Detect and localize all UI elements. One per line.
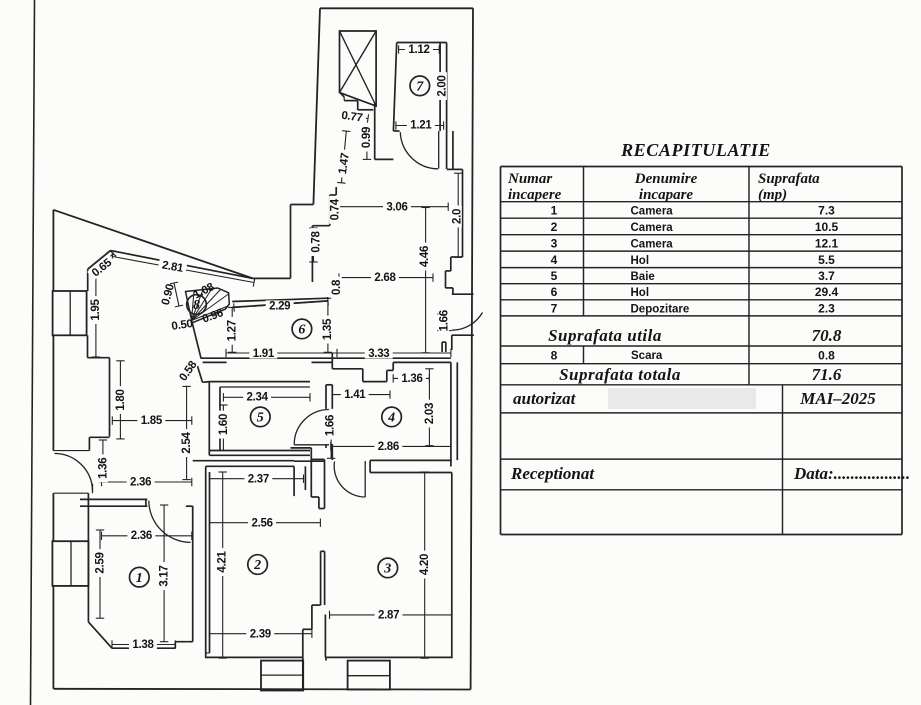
svg-text:2.0: 2.0: [451, 209, 463, 224]
svg-text:2.29: 2.29: [269, 301, 290, 313]
svg-text:2.86: 2.86: [378, 441, 399, 453]
svg-text:3.17: 3.17: [158, 565, 170, 586]
svg-text:7: 7: [416, 79, 424, 94]
svg-text:1.66: 1.66: [439, 310, 451, 331]
svg-text:2.68: 2.68: [374, 272, 396, 284]
svg-text:Hol: Hol: [631, 287, 650, 299]
svg-text:2.36: 2.36: [130, 477, 151, 489]
svg-text:Scara: Scara: [631, 350, 663, 362]
svg-text:1.80: 1.80: [115, 389, 127, 410]
svg-text:1.27: 1.27: [226, 320, 238, 341]
svg-text:RECAPITULATIE: RECAPITULATIE: [620, 140, 771, 160]
svg-text:4.21: 4.21: [217, 551, 229, 573]
svg-text:0.8: 0.8: [818, 349, 835, 363]
svg-text:3.06: 3.06: [386, 202, 407, 214]
svg-text:incapare: incapare: [639, 187, 694, 203]
svg-text:70.8: 70.8: [812, 326, 842, 345]
svg-text:Suprafata: Suprafata: [758, 171, 820, 187]
svg-text:1.36: 1.36: [97, 458, 109, 479]
svg-text:12.1: 12.1: [815, 236, 839, 250]
svg-text:6: 6: [298, 323, 305, 338]
svg-text:2.34: 2.34: [247, 392, 269, 404]
svg-text:1.12: 1.12: [408, 44, 429, 56]
svg-text:1.21: 1.21: [410, 120, 432, 132]
svg-text:71.6: 71.6: [812, 365, 842, 384]
svg-text:Suprafata totala: Suprafata totala: [559, 365, 681, 384]
svg-text:1.41: 1.41: [344, 389, 366, 401]
svg-text:autorizat: autorizat: [513, 389, 577, 408]
svg-text:5.5: 5.5: [818, 253, 835, 267]
svg-text:0.99: 0.99: [361, 127, 373, 148]
svg-text:7.3: 7.3: [818, 203, 835, 217]
svg-text:10.5: 10.5: [815, 220, 839, 234]
svg-text:MAI–2025: MAI–2025: [799, 389, 876, 408]
svg-text:Camera: Camera: [631, 222, 674, 234]
svg-text:4.20: 4.20: [419, 554, 431, 575]
svg-text:1: 1: [136, 571, 143, 586]
svg-text:Depozitare: Depozitare: [631, 303, 690, 315]
svg-text:8: 8: [551, 349, 558, 363]
svg-text:3.7: 3.7: [818, 269, 835, 283]
svg-text:1: 1: [551, 203, 558, 217]
svg-text:1.38: 1.38: [132, 639, 154, 651]
svg-text:5: 5: [551, 269, 558, 283]
svg-text:Hol: Hol: [631, 255, 650, 267]
svg-text:Baie: Baie: [631, 271, 655, 283]
svg-text:2.39: 2.39: [250, 628, 271, 640]
svg-text:6: 6: [551, 285, 558, 299]
svg-text:Data:..................: Data:..................: [793, 464, 910, 483]
svg-text:1.60: 1.60: [218, 414, 230, 435]
svg-text:3.33: 3.33: [368, 348, 389, 360]
svg-text:2.37: 2.37: [248, 473, 269, 485]
svg-text:29.4: 29.4: [815, 285, 839, 299]
svg-text:2.03: 2.03: [424, 403, 436, 424]
svg-text:0.78: 0.78: [310, 231, 322, 253]
svg-text:2.3: 2.3: [818, 301, 835, 315]
svg-text:4.46: 4.46: [419, 246, 431, 267]
svg-text:1.85: 1.85: [141, 415, 163, 427]
svg-text:2.54: 2.54: [181, 432, 193, 454]
svg-text:Numar: Numar: [507, 171, 552, 187]
svg-text:7: 7: [551, 301, 558, 315]
svg-text:4: 4: [551, 253, 558, 267]
svg-text:1.91: 1.91: [253, 348, 275, 360]
svg-text:2.59: 2.59: [95, 552, 107, 573]
svg-text:2.36: 2.36: [131, 530, 152, 542]
svg-text:2.00: 2.00: [436, 75, 448, 96]
svg-text:2.87: 2.87: [378, 610, 399, 622]
svg-text:2: 2: [253, 558, 261, 573]
svg-text:0.8: 0.8: [331, 279, 343, 295]
svg-text:incapere: incapere: [508, 187, 562, 203]
svg-text:Camera: Camera: [631, 238, 674, 250]
svg-text:2: 2: [551, 220, 558, 234]
svg-text:3: 3: [551, 236, 558, 250]
svg-text:3: 3: [383, 562, 391, 577]
svg-text:1.35: 1.35: [322, 318, 334, 340]
svg-text:Receptionat: Receptionat: [510, 464, 595, 483]
svg-text:5: 5: [257, 411, 264, 426]
svg-text:Suprafata utila: Suprafata utila: [548, 326, 662, 345]
svg-text:4: 4: [387, 411, 395, 426]
svg-text:1.66: 1.66: [325, 415, 337, 436]
svg-text:Camera: Camera: [631, 205, 674, 217]
svg-text:(mp): (mp): [758, 187, 787, 203]
svg-text:Denumire: Denumire: [634, 171, 698, 187]
svg-text:1.95: 1.95: [90, 299, 102, 321]
svg-text:0.74: 0.74: [329, 198, 341, 220]
svg-text:1.36: 1.36: [401, 373, 422, 385]
svg-text:2.56: 2.56: [252, 517, 273, 529]
